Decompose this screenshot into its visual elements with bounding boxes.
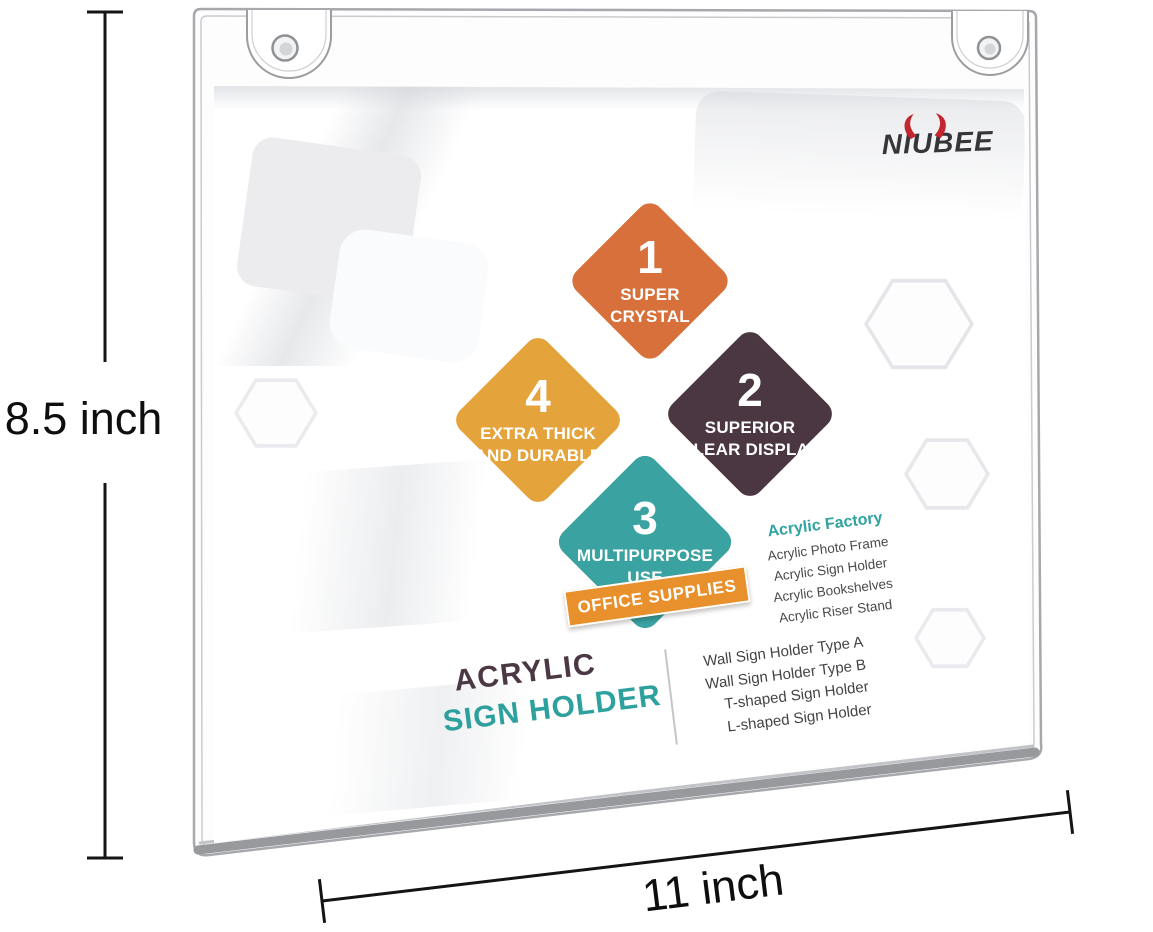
holder-types-list: Wall Sign Holder Type A Wall Sign Holder… — [687, 632, 873, 743]
acrylic-reflection — [214, 86, 1030, 110]
hexagon-watermark — [914, 606, 986, 670]
hexagon-watermark — [234, 376, 318, 450]
feature-label-line: MULTIPURPOSE — [577, 545, 713, 567]
feature-label-line: SUPER — [620, 284, 680, 306]
watermark-shape — [234, 135, 423, 307]
feature-label-line: SUPERIOR — [705, 417, 795, 439]
hanging-tab-right — [952, 11, 1028, 75]
acrylic-factory-list: Acrylic Factory Acrylic Photo Frame Acry… — [732, 505, 929, 633]
product-title: ACRYLIC SIGN HOLDER — [436, 638, 683, 740]
feature-number: 3 — [632, 495, 658, 541]
hexagon-watermark — [904, 436, 990, 512]
logo-letter-u: U — [911, 127, 933, 160]
height-dimension-label: 8.5 inch — [0, 393, 171, 445]
feature-number: 1 — [637, 234, 663, 280]
product-image: NI UBEE 1 SUPER CRYSTAL 4 EXTRA THICK AN… — [0, 0, 1153, 932]
insert-sheet: NI UBEE 1 SUPER CRYSTAL 4 EXTRA THICK AN… — [214, 86, 1030, 844]
hexagon-watermark — [864, 276, 974, 372]
feature-number: 2 — [737, 367, 763, 413]
feature-number: 4 — [525, 373, 551, 419]
bull-horns-icon — [902, 112, 949, 140]
